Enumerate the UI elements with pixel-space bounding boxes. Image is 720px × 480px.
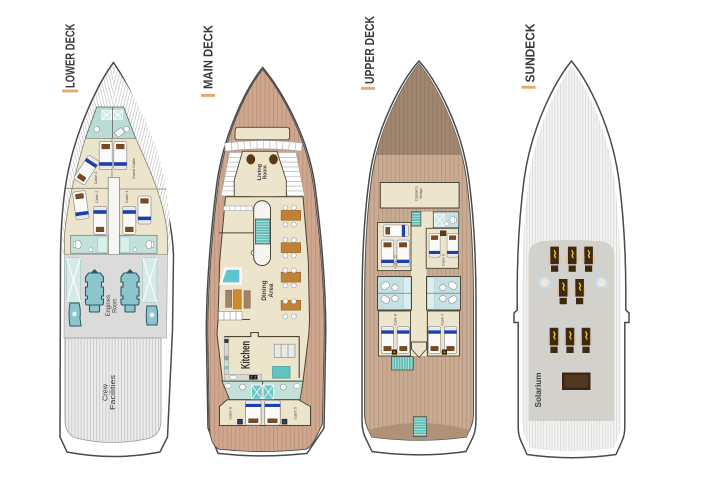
svg-text:Cabin 2: Cabin 2	[95, 191, 99, 203]
svg-text:Room: Room	[112, 299, 119, 313]
svg-text:Cabin 8: Cabin 8	[394, 314, 398, 326]
svg-text:Cabin 5: Cabin 5	[294, 407, 298, 419]
svg-text:Cabin 9: Cabin 9	[442, 254, 446, 266]
svg-text:Captain's: Captain's	[415, 186, 419, 201]
svg-text:Room: Room	[263, 165, 269, 180]
svg-text:Solarium: Solarium	[534, 372, 543, 407]
svg-text:Cabin 7: Cabin 7	[441, 314, 445, 326]
svg-text:Kitchen: Kitchen	[239, 341, 253, 369]
svg-text:Cabin 10: Cabin 10	[394, 255, 398, 269]
svg-text:MAIN DECK: MAIN DECK	[201, 24, 216, 89]
svg-text:LOWER DECK: LOWER DECK	[63, 23, 78, 88]
svg-text:Cabin 4: Cabin 4	[94, 172, 98, 184]
svg-text:SUNDECK: SUNDECK	[523, 23, 538, 83]
svg-text:Cabin 6: Cabin 6	[229, 407, 233, 419]
svg-text:Crew: Crew	[103, 383, 110, 401]
svg-text:Facilities: Facilities	[110, 374, 117, 410]
svg-text:UPPER DECK: UPPER DECK	[362, 16, 377, 84]
svg-text:Cabin 1: Cabin 1	[125, 191, 129, 203]
svg-text:Bridge: Bridge	[419, 188, 423, 198]
svg-text:Area: Area	[268, 283, 275, 297]
svg-text:Guest Cabin: Guest Cabin	[132, 158, 136, 179]
